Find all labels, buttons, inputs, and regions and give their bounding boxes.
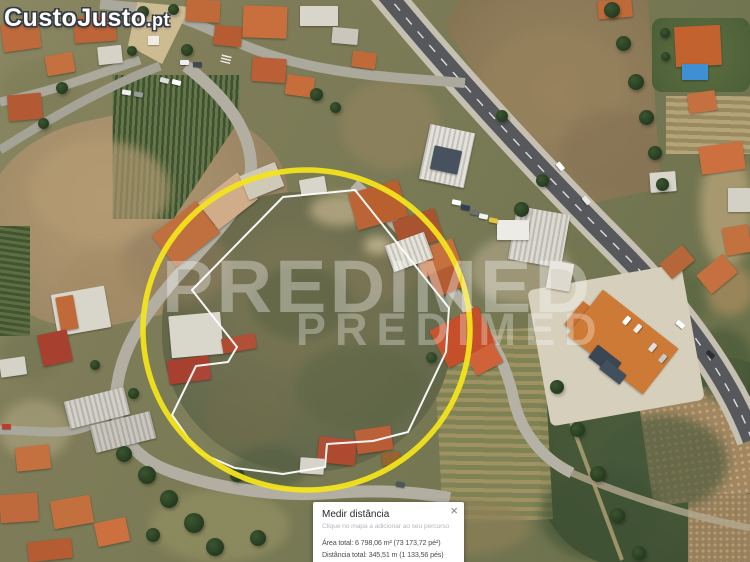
panel-title: Medir distância (322, 509, 455, 520)
distance-value: 345,51 m (1 133,56 pés) (369, 550, 444, 559)
panel-hint: Clique no mapa a adicionar ao seu percur… (322, 523, 455, 530)
measure-distance-panel: × Medir distância Clique no mapa a adici… (313, 502, 464, 562)
watermark-predimed-small: PREDIMED (296, 304, 606, 356)
area-total-line: Área total: 6 798,06 m² (73 173,72 pé²) (322, 537, 455, 549)
close-icon[interactable]: × (450, 504, 458, 517)
satellite-map[interactable]: PREDIMED PREDIMED CustoJusto.pt × Medir … (0, 0, 750, 562)
area-label: Área total: (322, 538, 353, 547)
logo-tld: .pt (147, 10, 171, 30)
distance-label: Distância total: (322, 550, 367, 559)
area-value: 6 798,06 m² (73 173,72 pé²) (355, 538, 440, 547)
distance-total-line: Distância total: 345,51 m (1 133,56 pés) (322, 549, 455, 561)
logo-text: CustoJusto (4, 4, 147, 32)
custojusto-logo: CustoJusto.pt (4, 4, 170, 33)
